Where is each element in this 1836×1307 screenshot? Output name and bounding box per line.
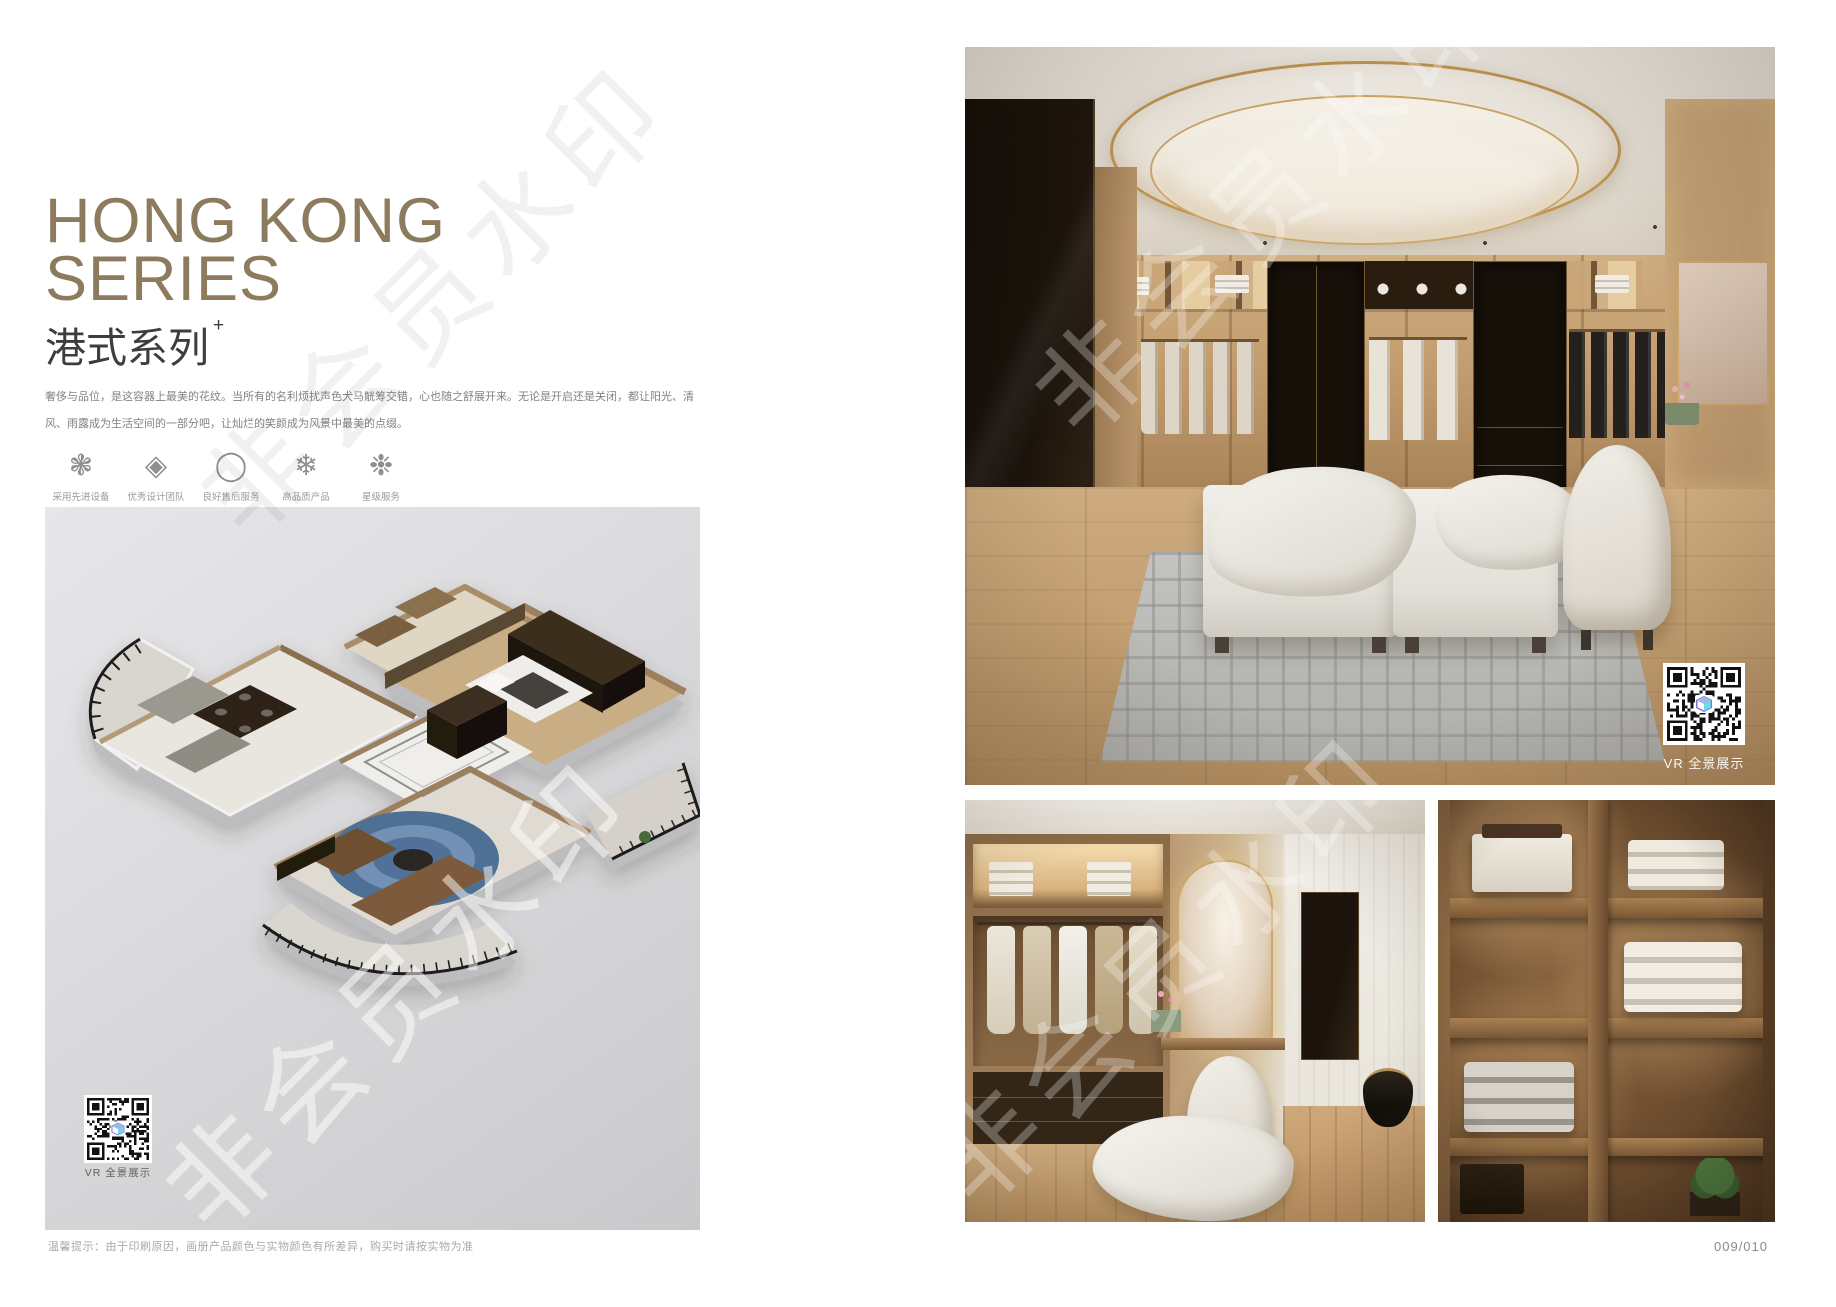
print-disclaimer: 温馨提示：由于印刷原因，画册产品颜色与实物颜色有所差异，购买时请按实物为准 <box>48 1238 474 1254</box>
feature-label: 优秀设计团队 <box>120 489 192 503</box>
feature-label: 采用先进设备 <box>45 489 117 503</box>
feature-item: ❄ 高品质产品 <box>270 446 342 503</box>
feature-item: ◯ 良好售后服务 <box>195 446 267 503</box>
diamond-weave-icon: ◈ <box>120 446 192 486</box>
vr-cube-logo-icon <box>1695 695 1713 713</box>
feature-item: ◈ 优秀设计团队 <box>120 446 192 503</box>
catalog-page: HONG KONG SERIES 港式系列+ 奢侈与品位，是这容器上最美的花纹。… <box>0 0 1836 1307</box>
feature-label: 良好售后服务 <box>195 489 267 503</box>
vr-panorama-label: VR 全景展示 <box>1652 753 1756 772</box>
vr-panorama-label: VR 全景展示 <box>64 1165 172 1180</box>
photo-walkin-closet <box>965 47 1775 785</box>
feature-label: 高品质产品 <box>270 489 342 503</box>
series-title-en: HONG KONG SERIES <box>45 192 446 308</box>
feature-list: ❃ 采用先进设备 ◈ 优秀设计团队 ◯ 良好售后服务 ❄ 高品质产品 ❉ 星级服… <box>45 446 417 503</box>
plus-mark: + <box>213 315 224 336</box>
vr-cube-logo-icon <box>111 1122 126 1137</box>
series-title-cn-text: 港式系列 <box>45 325 209 371</box>
feature-label: 星级服务 <box>345 489 417 503</box>
series-description: 奢侈与品位，是这容器上最美的花纹。当所有的名利烦扰声色犬马觥筹交错，心也随之舒展… <box>45 384 695 438</box>
series-title-line1: HONG KONG <box>45 192 446 250</box>
photo-dressing-area <box>965 800 1425 1222</box>
series-title-line2: SERIES <box>45 250 446 308</box>
photo-shelf-detail <box>1438 800 1775 1222</box>
series-title-cn: 港式系列+ <box>45 314 220 374</box>
photo-vignette <box>965 47 1775 785</box>
clover-ornament-icon: ❃ <box>45 446 117 486</box>
feature-item: ❃ 采用先进设备 <box>45 446 117 503</box>
qr-code-main-photo <box>1663 663 1745 745</box>
feature-item: ❉ 星级服务 <box>345 446 417 503</box>
ornate-snowflake-icon: ❉ <box>345 446 417 486</box>
qr-code-floorplan <box>84 1095 152 1163</box>
snowflake-icon: ❄ <box>270 446 342 486</box>
photo-vignette <box>965 800 1425 1222</box>
page-number: 009/010 <box>1714 1239 1768 1254</box>
ring-icon: ◯ <box>195 446 267 486</box>
photo-vignette <box>1438 800 1775 1222</box>
